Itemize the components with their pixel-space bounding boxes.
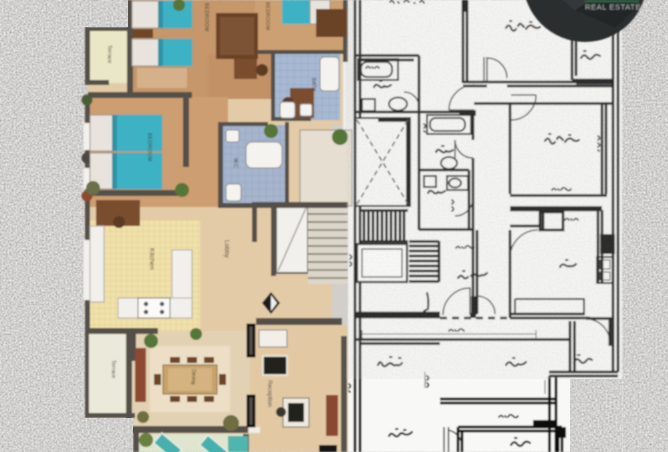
svg-text:Reception: Reception xyxy=(266,380,272,407)
svg-text:BEDROOM: BEDROOM xyxy=(146,133,152,162)
svg-text:Lobby: Lobby xyxy=(223,240,230,258)
svg-text:BEDROOM: BEDROOM xyxy=(264,2,270,31)
svg-text:Kitchen: Kitchen xyxy=(148,248,155,270)
svg-text:BEDROOM: BEDROOM xyxy=(203,3,209,32)
svg-text:Terrace: Terrace xyxy=(106,45,112,63)
svg-text:BATH: BATH xyxy=(310,78,316,91)
svg-text:Terrace: Terrace xyxy=(110,360,116,378)
svg-text:REAL ESTATE: REAL ESTATE xyxy=(585,3,641,12)
svg-text:W.C.: W.C. xyxy=(232,158,238,169)
svg-text:Dining: Dining xyxy=(190,369,196,385)
